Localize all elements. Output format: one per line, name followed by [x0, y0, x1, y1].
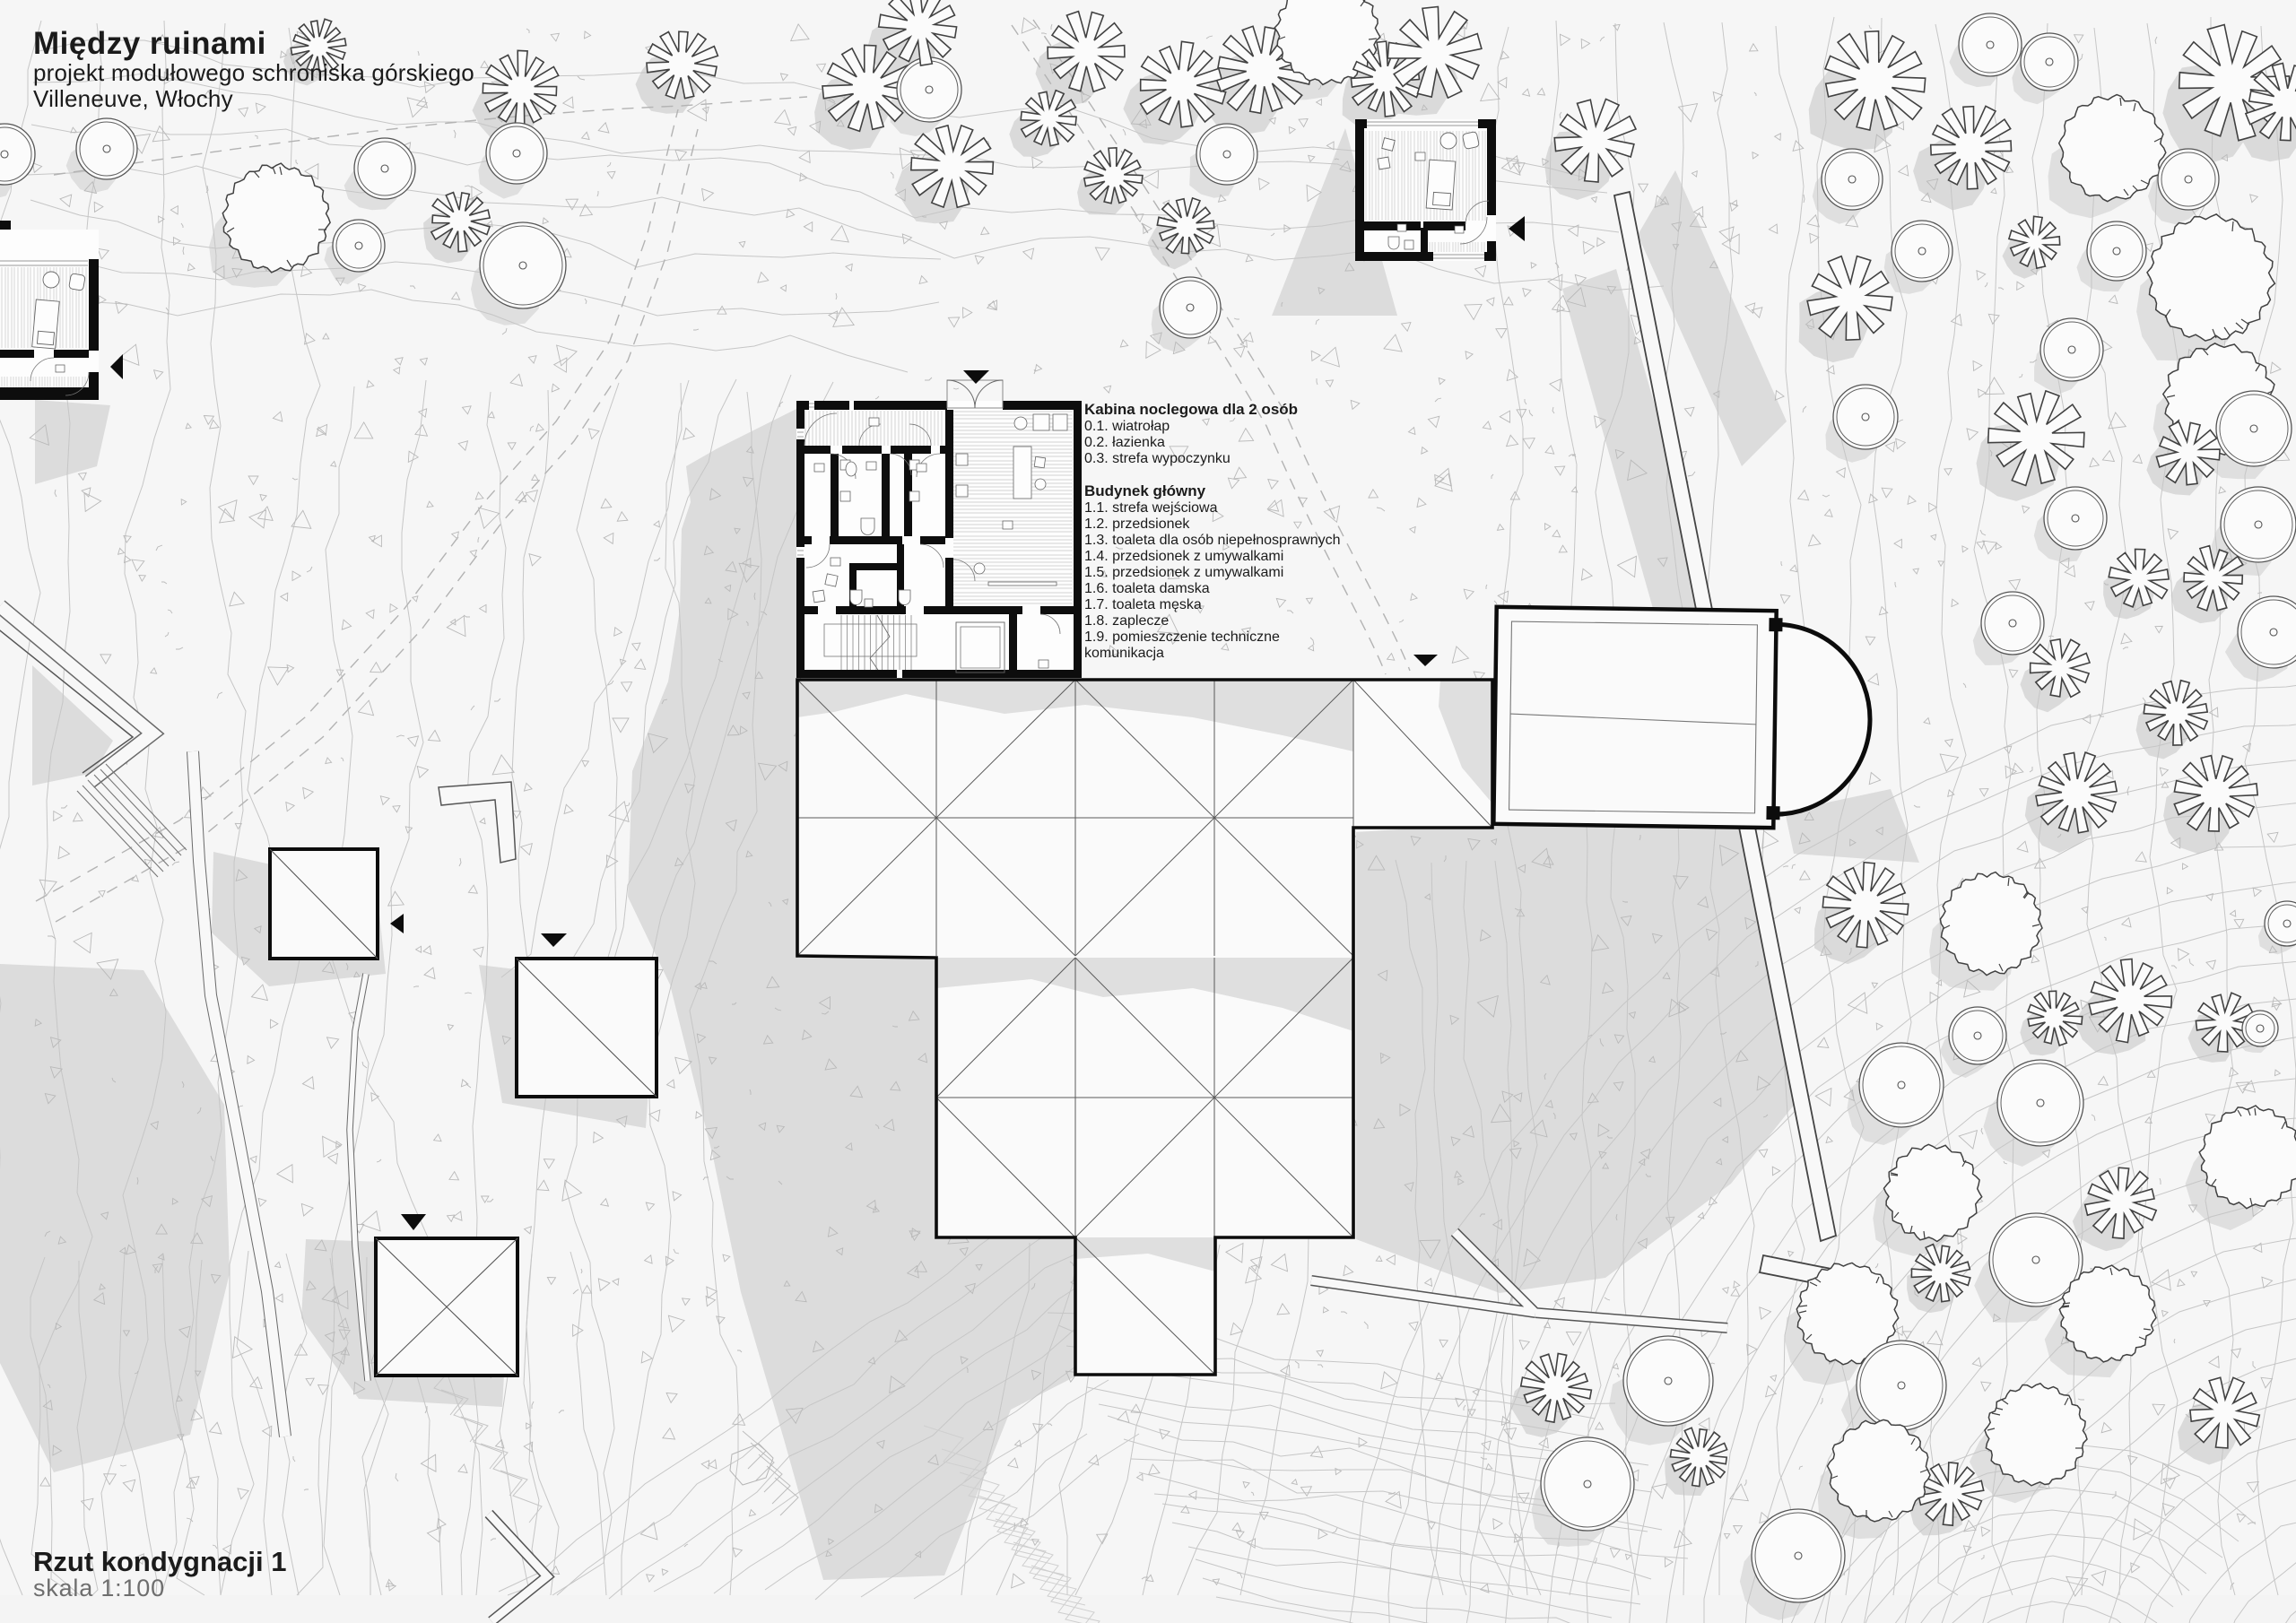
- svg-text:Villeneuve, Włochy: Villeneuve, Włochy: [33, 85, 233, 112]
- svg-text:1.7. toaleta męska: 1.7. toaleta męska: [1084, 597, 1202, 612]
- svg-text:1.4. przedsionek z umywalkami: 1.4. przedsionek z umywalkami: [1084, 549, 1283, 564]
- svg-text:1.5. przedsionek z umywalkami: 1.5. przedsionek z umywalkami: [1084, 565, 1283, 580]
- svg-text:1.2. przedsionek: 1.2. przedsionek: [1084, 516, 1190, 532]
- svg-text:1.8. zaplecze: 1.8. zaplecze: [1084, 613, 1169, 629]
- svg-text:komunikacja: komunikacja: [1084, 646, 1164, 661]
- svg-text:1.3. toaleta dla osób niepełno: 1.3. toaleta dla osób niepełnosprawnych: [1084, 533, 1341, 548]
- svg-text:1.9. pomieszczenie techniczne: 1.9. pomieszczenie techniczne: [1084, 629, 1280, 645]
- svg-text:0.2. łazienka: 0.2. łazienka: [1084, 435, 1165, 450]
- svg-text:projekt modułowego schroniska: projekt modułowego schroniska górskiego: [33, 59, 474, 86]
- svg-text:1.6. toaleta damska: 1.6. toaleta damska: [1084, 581, 1210, 596]
- svg-text:1.1. strefa wejściowa: 1.1. strefa wejściowa: [1084, 500, 1218, 516]
- svg-text:Między ruinami: Między ruinami: [33, 26, 266, 61]
- svg-text:Budynek główny: Budynek główny: [1084, 482, 1206, 499]
- svg-text:Rzut kondygnacji 1: Rzut kondygnacji 1: [33, 1546, 286, 1577]
- svg-text:Kabina noclegowa dla 2 osób: Kabina noclegowa dla 2 osób: [1084, 401, 1298, 418]
- svg-text:0.3. strefa wypoczynku: 0.3. strefa wypoczynku: [1084, 451, 1231, 466]
- svg-text:skala 1:100: skala 1:100: [33, 1575, 165, 1601]
- svg-text:0.1. wiatrołap: 0.1. wiatrołap: [1084, 419, 1170, 434]
